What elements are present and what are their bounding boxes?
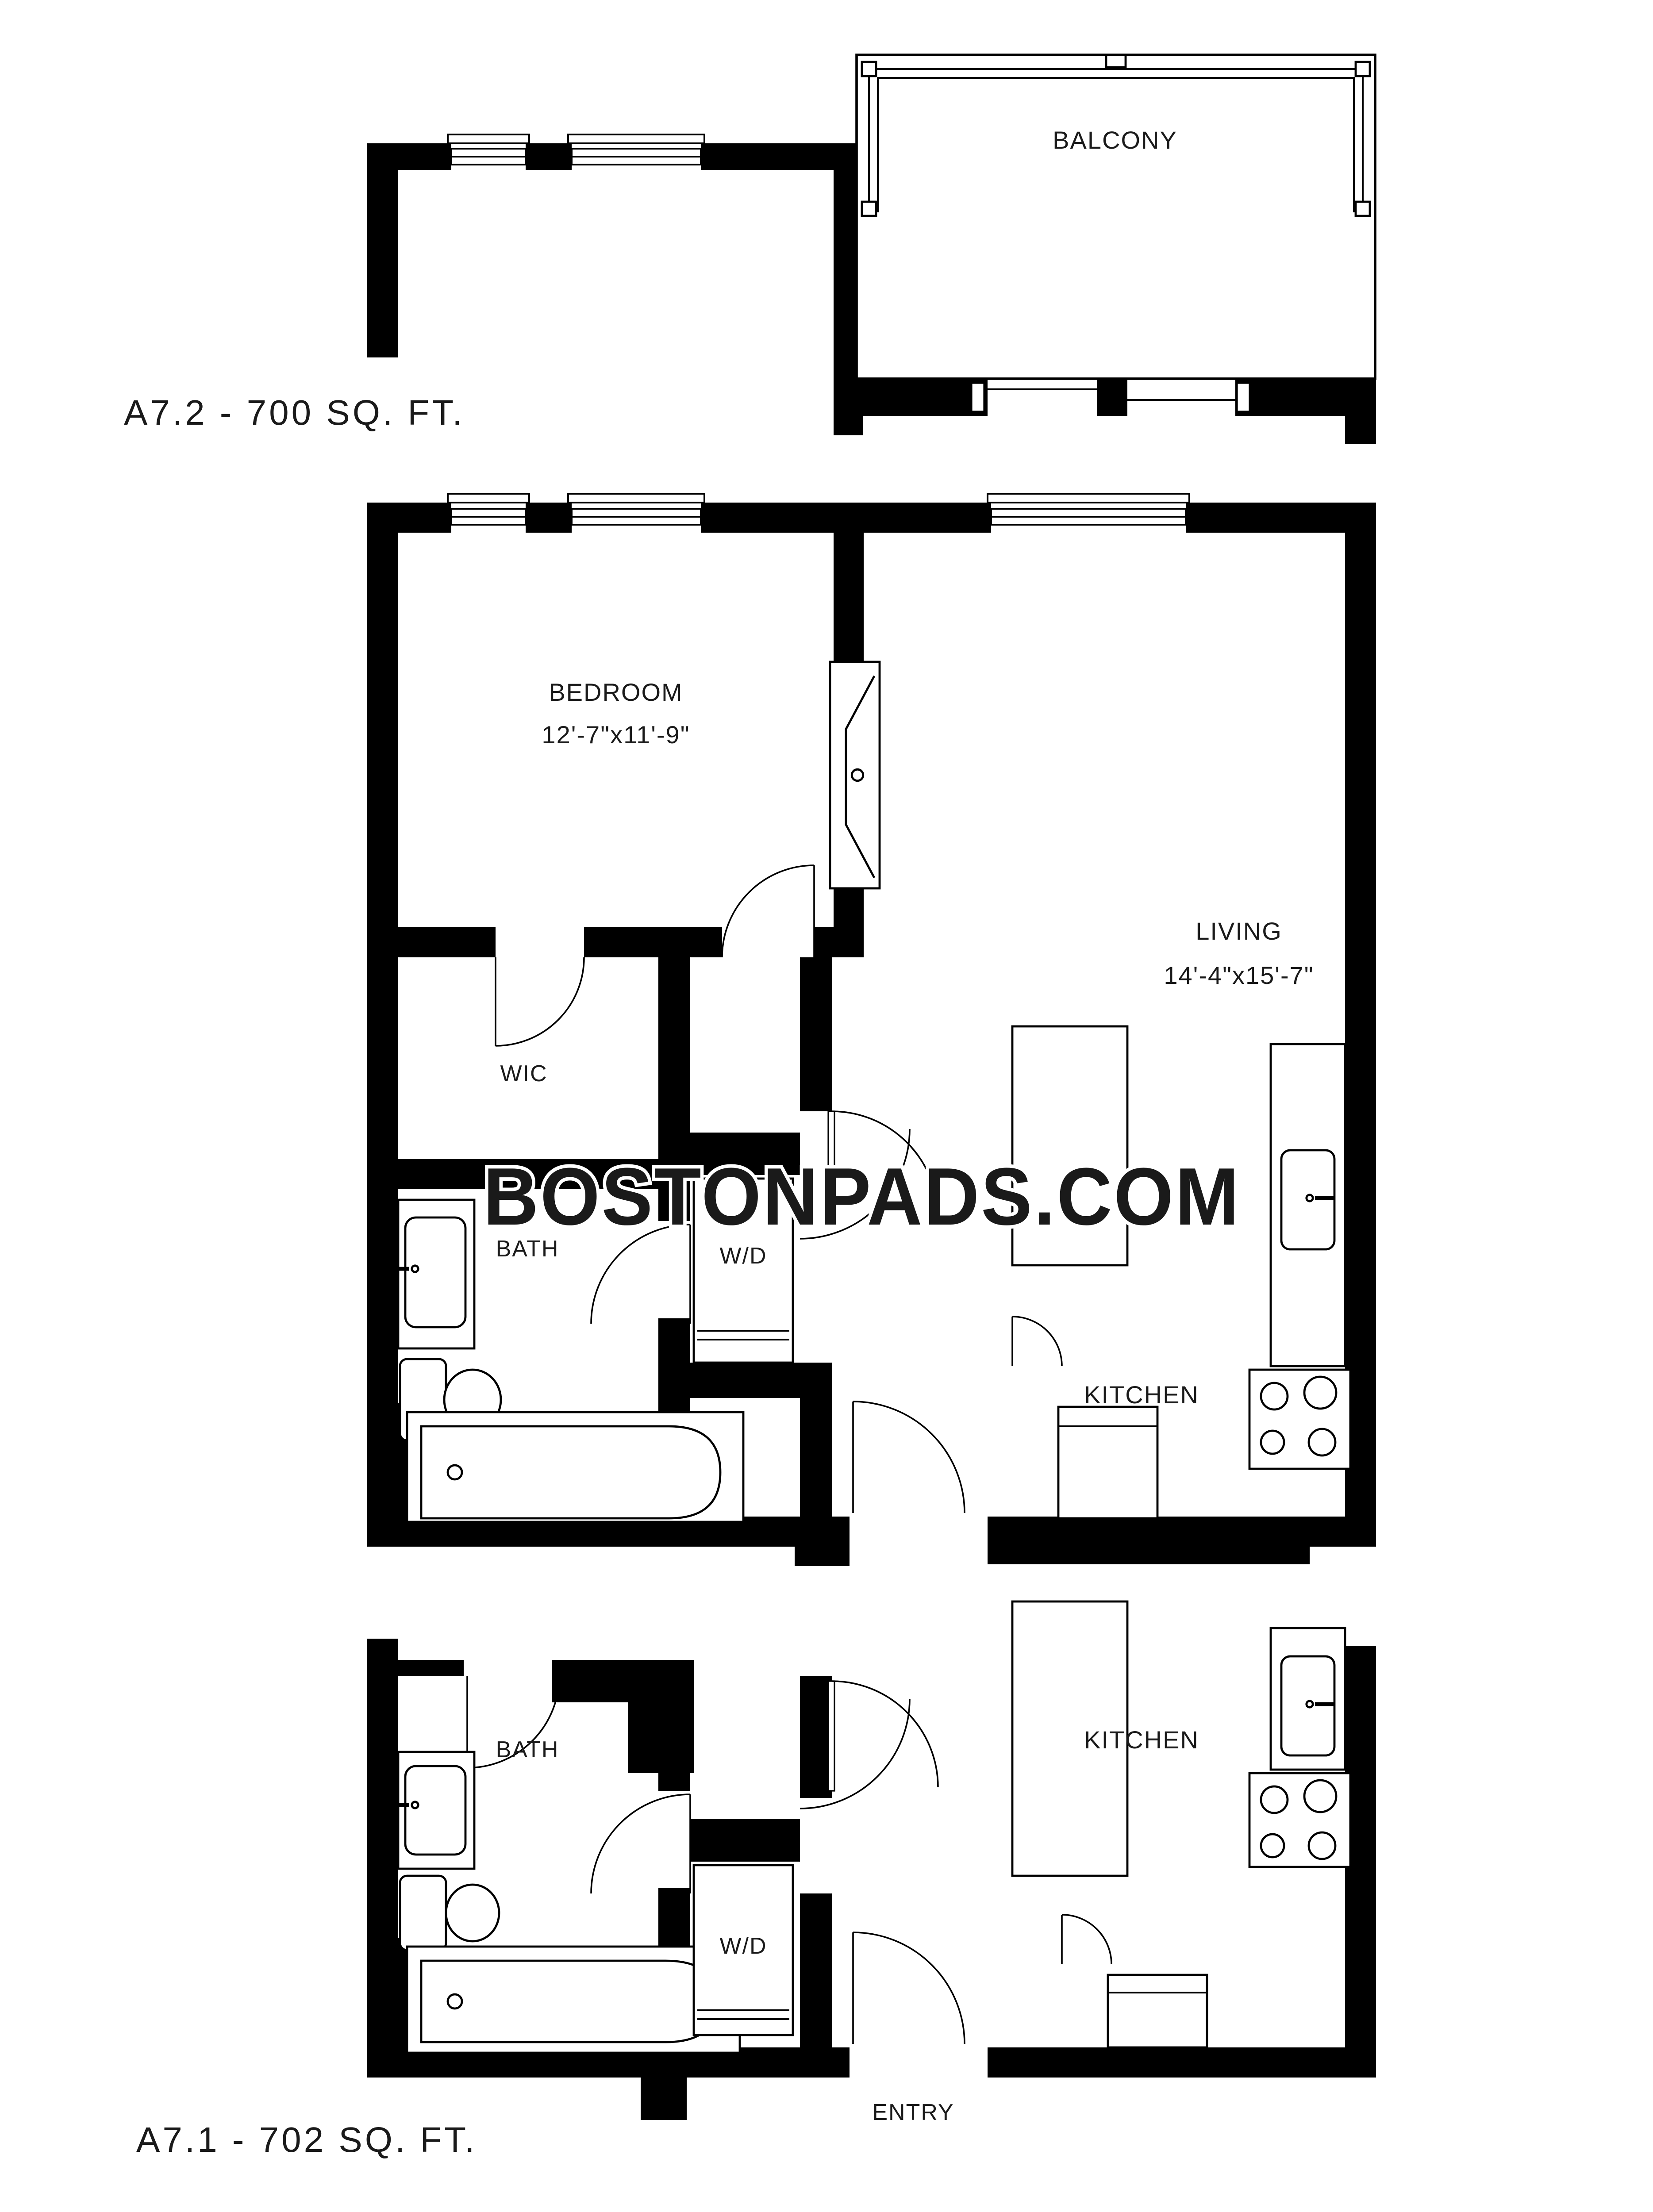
bostonpads-watermark: BOSTONPADS.COM <box>483 1151 1241 1242</box>
unit-main: BEDROOM 12'-7"x11'-9" LIVING 14'-4"x15'-… <box>367 494 1376 1566</box>
kitchen-sink-icon <box>1281 1150 1334 1249</box>
fridge-icon <box>1058 1407 1157 1518</box>
main-kitchen-label: KITCHEN <box>1084 1381 1199 1409</box>
bedroom-closet-icon <box>830 662 880 888</box>
a71-bathtub-icon <box>407 1947 740 2053</box>
a71-stove-icon <box>1249 1773 1350 1867</box>
a71-fridge-icon <box>1108 1975 1207 2047</box>
bathtub-icon <box>407 1412 743 1522</box>
main-bedroom-window-icon <box>448 494 704 525</box>
a71-bath-label: BATH <box>496 1737 559 1763</box>
bedroom-dims: 12'-7"x11'-9" <box>542 721 690 749</box>
bedroom-label: BEDROOM <box>549 678 683 706</box>
a71-bath-sink-icon <box>405 1766 465 1855</box>
balcony-label: BALCONY <box>1053 126 1177 154</box>
a72-room-walls <box>367 143 863 435</box>
main-kitchen-fixtures <box>1012 1026 1350 1518</box>
floorplan-svg: BALCONY A7.2 - 700 SQ. FT. <box>0 0 1653 2212</box>
living-dims: 14'-4"x15'-7" <box>1164 961 1314 989</box>
a71-kitchen-sink-icon <box>1281 1656 1334 1755</box>
a71-toilet-icon <box>400 1876 499 1950</box>
a71-size-label: A7.1 - 702 SQ. FT. <box>136 2120 477 2159</box>
a71-kitchen-fixtures <box>1012 1601 1350 2047</box>
a72-size-label: A7.2 - 700 SQ. FT. <box>124 393 465 432</box>
wic-label: WIC <box>500 1061 547 1087</box>
a71-wd-label: W/D <box>719 1933 767 1959</box>
main-living-window-icon <box>988 494 1189 525</box>
living-label: LIVING <box>1196 917 1282 945</box>
unit-a71-partial: BATH W/D KITCHEN ENTRY A7.1 - 702 SQ. FT… <box>136 1601 1376 2159</box>
a71-kitchen-label: KITCHEN <box>1084 1726 1199 1754</box>
balcony: BALCONY <box>857 55 1376 444</box>
stove-icon <box>1249 1370 1350 1469</box>
floorplan-page: BALCONY A7.2 - 700 SQ. FT. <box>0 0 1653 2212</box>
entry-label: ENTRY <box>872 2100 954 2125</box>
main-wd-label: W/D <box>719 1243 767 1269</box>
a72-window-icon <box>448 134 704 165</box>
unit-a72-partial: BALCONY A7.2 - 700 SQ. FT. <box>124 55 1376 444</box>
a71-hall-door-icon <box>832 1681 938 1787</box>
